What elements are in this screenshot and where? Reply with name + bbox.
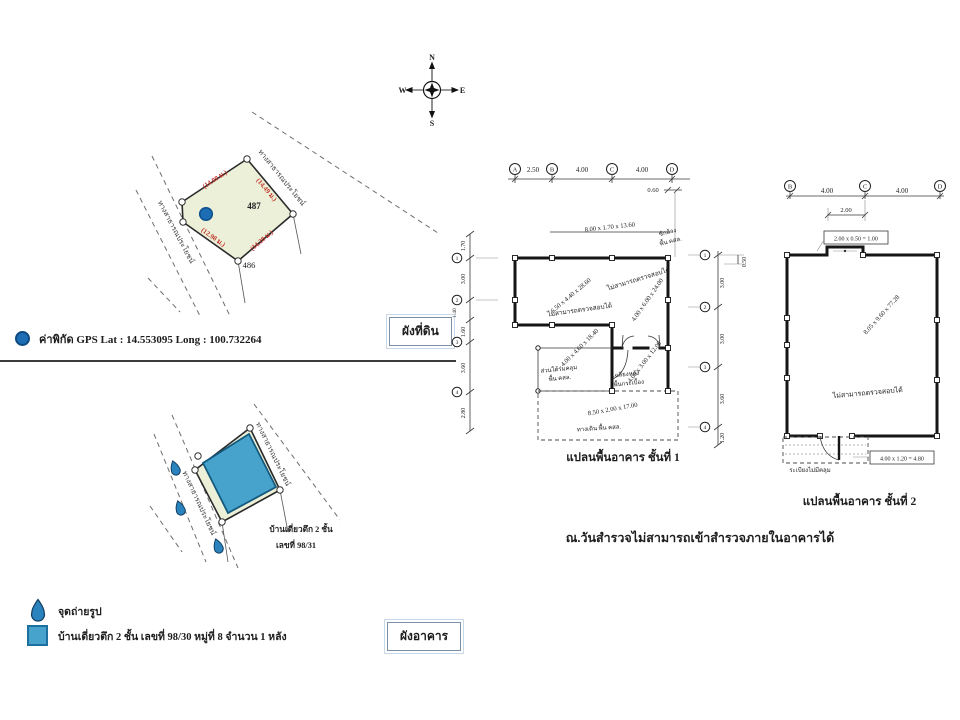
grid-bubble-d: D (670, 167, 675, 174)
gps-coordinates: ค่าพิกัด GPS Lat : 14.553095 Long : 100.… (39, 330, 262, 348)
dim-label: 0.60 (647, 187, 658, 194)
building-plan-tag: ผังอาคาร (387, 622, 461, 651)
grid-bubble-3: 3 (456, 340, 459, 346)
gps-point-marker-icon (200, 208, 213, 221)
legend-building-label: บ้านเดี่ยวตึก 2 ชั้น เลขที่ 98/30 หมู่ที… (58, 628, 287, 645)
dim-label: 2.80 (461, 408, 467, 419)
dim-label: 1.60 (461, 327, 467, 338)
boundary-post-icon (179, 199, 185, 205)
land-plot-diagram: 487 486 (14.00 ม.) (14.49 ม.) (12.98 ม.)… (118, 106, 450, 318)
road-edge-line (148, 278, 180, 312)
wash-area-label: ซักล้าง (658, 227, 677, 238)
plot-number: 487 (247, 201, 261, 211)
boundary-post-icon (277, 487, 283, 493)
boundary-post-icon (195, 453, 201, 459)
room-note: ไม่สามารถตรวจสอบได้ (831, 385, 903, 400)
floor-plan-2: B C D 4.00 4.00 2.00 2.00 x 0.50 = 1.00 … (758, 168, 960, 518)
dim-label: 3.00 (720, 334, 726, 345)
dim-label: 4.00 (636, 166, 649, 174)
land-plan-tag: ผังที่ดิน (389, 317, 452, 346)
grid-bubble-b: B (788, 184, 793, 191)
floor2-caption: แปลนพื้นอาคาร ชั้นที่ 2 (787, 493, 932, 511)
dim-label: 4.00 (821, 187, 834, 195)
boundary-post-icon (192, 467, 198, 473)
compass-arrow-north (429, 62, 435, 70)
dim-label: 1.40 (452, 308, 458, 318)
canopy-calc: 2.00 x 0.50 = 1.00 (834, 237, 878, 243)
balcony-calc: 4.00 x 1.20 = 4.80 (880, 457, 924, 463)
scanned-survey-document: N S W E 487 486 (14.00 ม.) (14.49 ม.) (1… (0, 0, 960, 720)
boundary-post-icon (235, 258, 241, 264)
grid-bubble-1: 1 (456, 256, 459, 262)
post-markers (785, 253, 940, 439)
dim-label: 0.50 (742, 257, 748, 268)
terrace-label: ทางเดิน พื้น คสล. (576, 420, 621, 433)
boundary-post-icon (290, 211, 296, 217)
balcony-label: ระเบียงไม่มีคลุม (789, 466, 830, 474)
dim-label: 2.50 (527, 166, 540, 174)
room-dim: 8.05 x 9.60 x 77.28 (862, 294, 901, 336)
photo-point-icon (211, 538, 224, 555)
floor-plan-1: A B C D 2.50 4.00 4.00 0.60 8.00 x 1.70 … (445, 148, 755, 480)
dim-label: 3.60 (720, 394, 726, 405)
legend-building-swatch (27, 625, 48, 646)
grid-bubble-b: B (550, 167, 555, 174)
dim-label: 4.00 (896, 187, 909, 195)
dim-label: 2.00 (840, 207, 851, 214)
exterior-walls (787, 247, 937, 436)
gps-marker-icon (15, 331, 30, 346)
compass-north-label: N (429, 53, 435, 62)
boundary-post-icon (247, 425, 253, 431)
house-label-line1: บ้านเดี่ยวตึก 2 ชั้น (269, 522, 333, 534)
dim-label: 3.00 (461, 274, 467, 285)
survey-note: ณ.วันสำรวจไม่สามารถเข้าสำรวจภายในอาคารได… (545, 528, 855, 548)
grid-bubble-4: 4 (456, 390, 459, 396)
grid-bubble-2: 2 (704, 305, 707, 311)
neighbor-plot-number: 486 (243, 260, 256, 270)
grid-bubble-d: D (938, 184, 943, 191)
terrace-outline (538, 391, 678, 440)
compass-east-label: E (460, 86, 465, 95)
dim-label: 1.20 (720, 433, 726, 444)
house-label-line2: เลขที่ 98/31 (276, 539, 316, 550)
grid-bubble-c: C (863, 184, 867, 191)
photo-point-icon (173, 500, 186, 517)
building-plot-diagram: ทางสาธารณประโยชน์ ทางสาธารณประโยชน์ บ้าน… (118, 396, 370, 574)
grid-bubble-4: 4 (704, 425, 707, 431)
grid-bubble-c: C (610, 167, 614, 174)
boundary-post-icon (219, 519, 225, 525)
compass-arrow-east (452, 87, 460, 93)
compass-west-label: W (399, 86, 407, 95)
section-divider (0, 360, 456, 362)
legend-photo-point-icon (26, 597, 50, 623)
dim-label: 1.70 (461, 241, 467, 252)
photo-point-icon (168, 460, 181, 477)
dim-label: 3.60 (461, 363, 467, 374)
grid-bubble-1: 1 (704, 253, 707, 259)
boundary-post-icon (244, 156, 250, 162)
terrace-dim: 8.50 x 2.00 x 17.00 (587, 402, 638, 418)
legend-photo-point-label: จุดถ่ายรูป (58, 603, 102, 620)
balcony-outline (783, 437, 868, 463)
grid-bubble-2: 2 (456, 298, 459, 304)
dim-label: 3.00 (720, 278, 726, 289)
eave-label: ส่วนใต้ร่มคลุม (540, 363, 577, 375)
room2-dim: 4.00 x 6.00 x 24.00 (630, 277, 665, 322)
grid-bubble-a: A (513, 167, 518, 174)
floor1-caption: แปลนพื้นอาคาร ชั้นที่ 1 (548, 449, 698, 467)
dim-label: 4.00 (576, 166, 589, 174)
grid-bubble-3: 3 (704, 365, 707, 371)
boundary-post-icon (180, 219, 186, 225)
